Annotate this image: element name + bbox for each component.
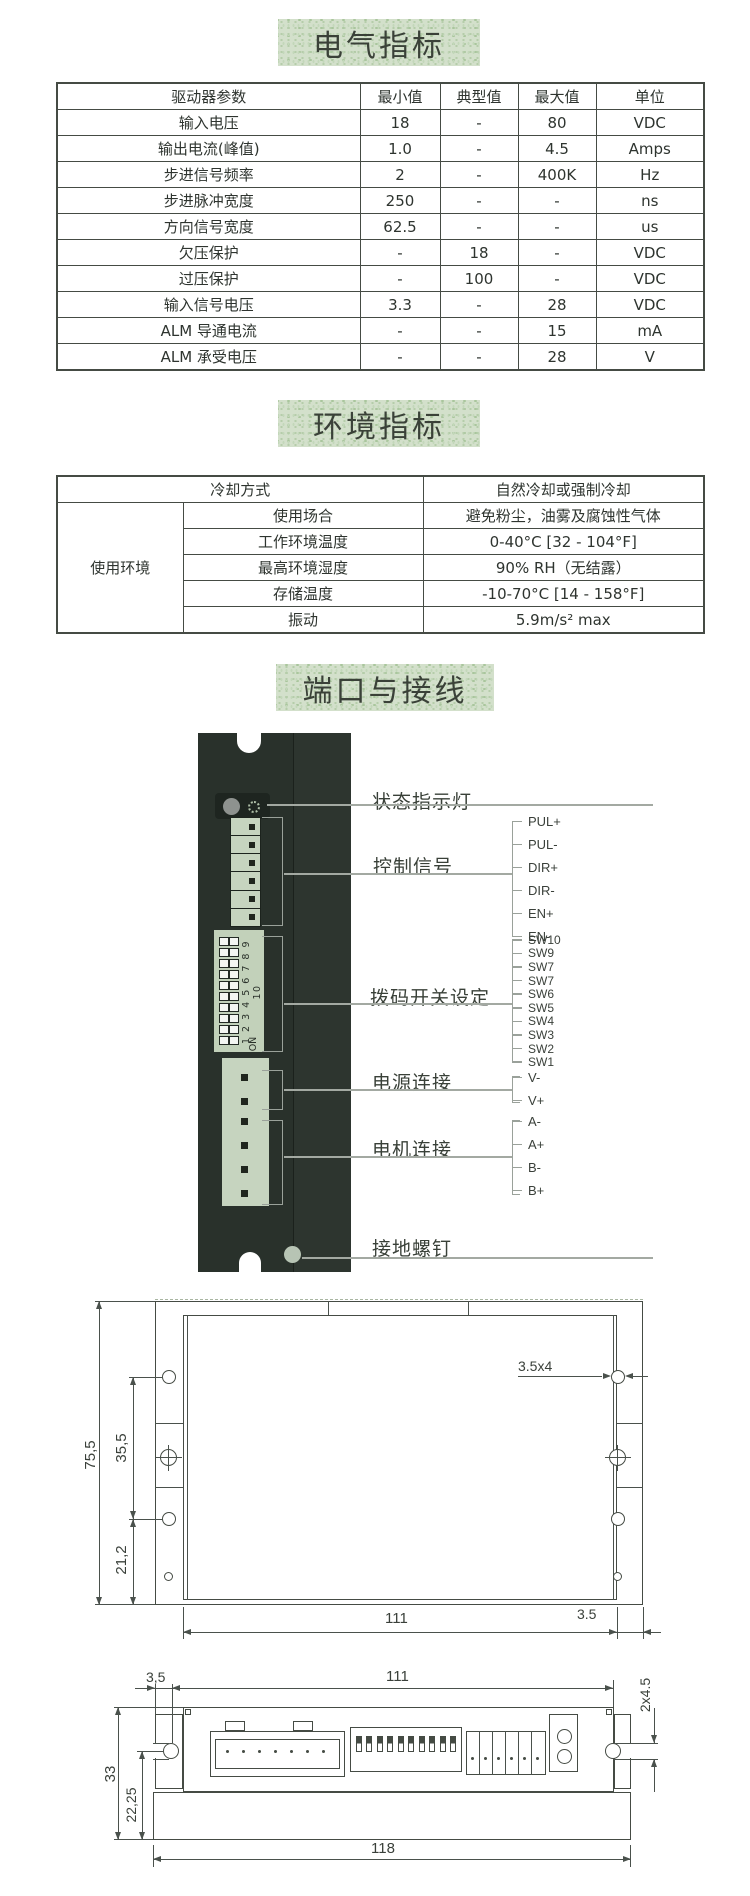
slot-line	[613, 1743, 658, 1744]
pin-label: SW5	[513, 1001, 561, 1015]
dip-switch-side	[419, 1736, 425, 1752]
pin-dot	[306, 1750, 309, 1753]
pin-label: EN+	[513, 902, 561, 925]
led-sparkle-icon	[248, 801, 260, 813]
pin-label: SW4	[513, 1015, 561, 1029]
dim-height-slot: 22,25	[123, 1779, 139, 1831]
dim-hole-span: 35,5	[113, 1428, 129, 1468]
terminal-pin	[241, 1190, 248, 1197]
leader-line	[284, 873, 512, 875]
ext-line	[172, 1684, 173, 1743]
top-tab-line	[328, 1301, 329, 1315]
table-cell: 步进信号频率	[57, 162, 360, 188]
table-row: 冷却方式 自然冷却或强制冷却	[57, 476, 704, 503]
table-cell: 62.5	[360, 214, 440, 240]
ext-line	[95, 1301, 155, 1302]
dim-line	[133, 1377, 134, 1519]
environment-title-text: 环境指标	[313, 402, 445, 446]
mounting-notch-bottom	[239, 1252, 261, 1272]
col-header-unit: 单位	[596, 83, 704, 110]
leader-line	[633, 1376, 648, 1377]
pin-dot	[226, 1750, 229, 1753]
table-cell: -	[440, 136, 518, 162]
ext-line	[613, 1680, 614, 1707]
dip-switch-side	[408, 1736, 414, 1752]
table-cell: Hz	[596, 162, 704, 188]
arrowhead	[651, 1735, 657, 1743]
table-cell: 28	[518, 292, 596, 318]
dip-switch[interactable]	[219, 981, 239, 990]
table-row: 过压保护-100-VDC	[57, 266, 704, 292]
terminal-cell	[231, 836, 260, 853]
table-row: 方向信号宽度62.5--us	[57, 214, 704, 240]
cooling-method-label: 冷却方式	[57, 476, 423, 503]
small-hole	[164, 1572, 173, 1581]
pin-dot	[510, 1757, 513, 1760]
power-pin-list: V-V+	[513, 1066, 544, 1112]
dim-offset-left: 3,5	[146, 1669, 165, 1685]
table-cell: ALM 承受电压	[57, 344, 360, 371]
arrowhead	[139, 1832, 145, 1840]
screw-cross	[617, 1445, 618, 1471]
table-cell: 过压保护	[57, 266, 360, 292]
cooling-method-value: 自然冷却或强制冷却	[423, 476, 704, 503]
table-cell: 400K	[518, 162, 596, 188]
pin-label: PUL+	[513, 810, 561, 833]
table-cell: -10-70°C [14 - 158°F]	[423, 581, 704, 607]
dip-switch[interactable]	[219, 1014, 239, 1023]
table-row: ALM 承受电压--28V	[57, 344, 704, 371]
col-header-min: 最小值	[360, 83, 440, 110]
arrowhead	[153, 1856, 161, 1862]
pin-label: SW3	[513, 1028, 561, 1042]
dip-switch[interactable]	[219, 948, 239, 957]
dip-switch[interactable]	[219, 1036, 239, 1045]
dim-hole-size: 3.5x4	[518, 1358, 552, 1374]
pin-label: SW9	[513, 947, 561, 961]
table-cell: -	[518, 188, 596, 214]
dim-height-overall: 75,5	[82, 1435, 98, 1475]
table-cell: 100	[440, 266, 518, 292]
arrowhead	[625, 1373, 633, 1379]
sw-pin-list: SW10SW9SW7SW7SW6SW5SW4SW3SW2SW1	[513, 933, 561, 1069]
dim-line	[153, 1859, 631, 1860]
pin-dot	[497, 1757, 500, 1760]
col-header-max: 最大值	[518, 83, 596, 110]
terminal-pin	[241, 1074, 248, 1081]
pin-label: V-	[513, 1066, 544, 1089]
dip-switch-side	[429, 1736, 435, 1752]
ext-line	[137, 1751, 163, 1752]
centerline	[155, 1299, 643, 1300]
dim-width-body: 111	[385, 1610, 408, 1627]
pin-label: B-	[513, 1156, 544, 1179]
table-cell: 0-40°C [32 - 104°F]	[423, 529, 704, 555]
dim-line	[183, 1632, 661, 1633]
table-cell: 28	[518, 344, 596, 371]
dip-switch[interactable]	[219, 1025, 239, 1034]
screw-cross	[605, 1457, 631, 1458]
leader-line	[284, 1089, 512, 1091]
table-cell: 18	[360, 110, 440, 136]
connector-tab	[225, 1721, 245, 1731]
table-cell: -	[440, 318, 518, 344]
terminal-cell	[231, 872, 260, 889]
pin-dot	[290, 1750, 293, 1753]
connector-inner	[215, 1739, 340, 1769]
ext-line	[155, 1684, 156, 1714]
dip-switch-side	[377, 1736, 383, 1752]
col-header-typical: 典型值	[440, 83, 518, 110]
dim-line	[135, 1688, 613, 1689]
corner-mark	[185, 1709, 191, 1715]
mounting-hole	[162, 1370, 176, 1384]
arrowhead	[115, 1707, 121, 1715]
arrowhead	[139, 1751, 145, 1759]
table-cell: -	[360, 318, 440, 344]
dip-switch-side	[366, 1736, 372, 1752]
pin-label: SW10	[513, 933, 561, 947]
dim-slot-size: 2x4.5	[637, 1669, 653, 1721]
table-cell: -	[360, 344, 440, 371]
table-cell: 2	[360, 162, 440, 188]
slot-end	[163, 1743, 179, 1759]
table-cell: 90% RH（无结露）	[423, 555, 704, 581]
cell-divider	[492, 1731, 493, 1775]
pin-label: PUL-	[513, 833, 561, 856]
arrowhead	[130, 1519, 136, 1527]
environment-table: 冷却方式 自然冷却或强制冷却 使用环境 使用场合 避免粉尘，油雾及腐蚀性气体 工…	[56, 475, 705, 634]
pin-label: SW2	[513, 1042, 561, 1056]
table-cell: 4.5	[518, 136, 596, 162]
screw-cross	[156, 1457, 182, 1458]
table-cell: 15	[518, 318, 596, 344]
arrowhead	[172, 1685, 180, 1691]
arrowhead	[147, 1685, 155, 1691]
bracket-power	[262, 1070, 283, 1110]
usage-env-group-label: 使用环境	[57, 503, 183, 634]
screw-cross	[168, 1445, 169, 1471]
corner-mark	[606, 1709, 612, 1715]
mounting-hole	[611, 1512, 625, 1526]
screw-hole	[557, 1729, 572, 1744]
control-pin-list: PUL+PUL-DIR+DIR-EN+EN-	[513, 810, 561, 948]
arrowhead	[651, 1759, 657, 1767]
dim-line	[99, 1301, 100, 1605]
terminal-cell	[231, 909, 260, 926]
table-cell: -	[440, 110, 518, 136]
terminal-pin	[241, 1166, 248, 1173]
table-row: 输入信号电压3.3-28VDC	[57, 292, 704, 318]
table-row: ALM 导通电流--15mA	[57, 318, 704, 344]
ports-title-text: 端口与接线	[303, 666, 468, 710]
leader-line	[284, 1003, 512, 1005]
table-cell: 避免粉尘，油雾及腐蚀性气体	[423, 503, 704, 529]
leader-line	[267, 804, 653, 806]
table-row: 步进信号频率2-400KHz	[57, 162, 704, 188]
ports-section-title: 端口与接线	[276, 664, 494, 711]
ext-line	[95, 1604, 155, 1605]
dip-switch-side	[387, 1736, 393, 1752]
pin-label: SW7	[513, 974, 561, 988]
environment-section-title: 环境指标	[278, 400, 480, 447]
table-cell: Amps	[596, 136, 704, 162]
control-signal-connector	[230, 817, 261, 927]
driver-datasheet-page: 电气指标 驱动器参数 最小值 典型值 最大值 单位 输入电压18-80VDC输出…	[0, 0, 750, 1896]
arrowhead	[623, 1856, 631, 1862]
pin-label: DIR-	[513, 879, 561, 902]
flange-line	[155, 1487, 183, 1488]
table-cell: -	[440, 214, 518, 240]
table-cell: 80	[518, 110, 596, 136]
leader-line	[302, 1257, 653, 1259]
base-outline	[153, 1792, 631, 1840]
table-cell: 输入电压	[57, 110, 360, 136]
pin-dot	[471, 1757, 474, 1760]
arrowhead	[605, 1685, 613, 1691]
arrowhead	[609, 1629, 617, 1635]
pin-label: DIR+	[513, 856, 561, 879]
table-cell: us	[596, 214, 704, 240]
flange-line	[617, 1423, 643, 1424]
pin-dot	[322, 1750, 325, 1753]
small-hole	[613, 1572, 622, 1581]
mounting-hole	[162, 1512, 176, 1526]
terminal-pin	[241, 1142, 248, 1149]
table-cell: -	[518, 240, 596, 266]
mounting-hole	[611, 1370, 625, 1384]
power-connector-side	[466, 1731, 546, 1775]
dip-switch[interactable]	[219, 992, 239, 1001]
connector-tab	[293, 1721, 313, 1731]
slot-end	[605, 1743, 621, 1759]
pin-dot	[274, 1750, 277, 1753]
table-cell: 1.0	[360, 136, 440, 162]
table-cell: -	[360, 266, 440, 292]
table-cell: 步进脉冲宽度	[57, 188, 360, 214]
dim-line	[142, 1751, 143, 1840]
status-led-label: 状态指示灯	[372, 787, 472, 814]
terminal-pin	[241, 1118, 248, 1125]
screw-hole	[557, 1749, 572, 1764]
dip-on-label: ON	[247, 1031, 259, 1057]
cell-divider	[505, 1731, 506, 1775]
table-cell: -	[440, 344, 518, 371]
table-cell: 输出电流(峰值)	[57, 136, 360, 162]
table-cell: 使用场合	[183, 503, 423, 529]
motor-pin-list: A-A+B-B+	[513, 1110, 544, 1202]
table-cell: 存储温度	[183, 581, 423, 607]
dip-switch-label: 拨码开关设定	[370, 983, 490, 1010]
pin-label: B+	[513, 1179, 544, 1202]
dip-switch-side	[398, 1736, 404, 1752]
dim-flange-offset: 3.5	[577, 1606, 596, 1622]
bracket-dip	[262, 936, 283, 1052]
leader-line	[284, 1156, 512, 1158]
table-row: 欠压保护-18-VDC	[57, 240, 704, 266]
table-row: 步进脉冲宽度250--ns	[57, 188, 704, 214]
table-cell: 输入信号电压	[57, 292, 360, 318]
pin-label: A+	[513, 1133, 544, 1156]
cell-divider	[518, 1731, 519, 1775]
pin-dot	[523, 1757, 526, 1760]
pin-label: SW6	[513, 987, 561, 1001]
table-cell: -	[518, 266, 596, 292]
top-tab-line	[468, 1301, 469, 1315]
pin-label: V+	[513, 1089, 544, 1112]
table-cell: -	[440, 292, 518, 318]
table-cell: -	[440, 188, 518, 214]
arrowhead	[183, 1629, 191, 1635]
dim-height-overall: 33	[102, 1759, 118, 1789]
ext-line	[617, 1607, 618, 1639]
terminal-cell	[231, 891, 260, 908]
ground-screw	[284, 1246, 301, 1263]
flange-line	[617, 1487, 643, 1488]
table-cell: VDC	[596, 292, 704, 318]
pin-dot	[242, 1750, 245, 1753]
flange-line	[155, 1423, 183, 1424]
ext-line	[114, 1707, 183, 1708]
table-cell: VDC	[596, 110, 704, 136]
dim-hole-bottom: 21,2	[113, 1540, 129, 1580]
leader-line	[518, 1376, 602, 1377]
terminal-pin	[241, 1098, 248, 1105]
table-cell: 最高环境湿度	[183, 555, 423, 581]
electrical-title-text: 电气指标	[313, 21, 445, 65]
arrowhead	[643, 1629, 651, 1635]
electrical-section-title: 电气指标	[278, 19, 480, 66]
terminal-cell	[231, 854, 260, 871]
dip-switch[interactable]	[219, 937, 239, 946]
slot-line	[153, 1743, 169, 1744]
pin-label: A-	[513, 1110, 544, 1133]
electrical-header-row: 驱动器参数 最小值 典型值 最大值 单位	[57, 83, 704, 110]
table-cell: -	[518, 214, 596, 240]
table-cell: 欠压保护	[57, 240, 360, 266]
dim-width-overall: 118	[371, 1840, 395, 1857]
table-cell: -	[440, 162, 518, 188]
arrowhead	[130, 1511, 136, 1519]
table-cell: 18	[440, 240, 518, 266]
status-led	[223, 798, 240, 815]
table-row: 输出电流(峰值)1.0-4.5Amps	[57, 136, 704, 162]
arrowhead	[130, 1377, 136, 1385]
slot-line	[153, 1759, 169, 1760]
cell-divider	[479, 1731, 480, 1775]
table-cell: 工作环境温度	[183, 529, 423, 555]
pin-dot	[258, 1750, 261, 1753]
table-row: 使用环境 使用场合 避免粉尘，油雾及腐蚀性气体	[57, 503, 704, 529]
dip-switch-side	[450, 1736, 456, 1752]
arrowhead	[96, 1301, 102, 1309]
table-cell: VDC	[596, 240, 704, 266]
table-row: 输入电压18-80VDC	[57, 110, 704, 136]
table-cell: 5.9m/s² max	[423, 607, 704, 634]
bracket-control	[262, 817, 283, 926]
dip-switch[interactable]	[219, 959, 239, 968]
dip-switch[interactable]	[219, 1003, 239, 1012]
table-cell: VDC	[596, 266, 704, 292]
ext-line	[129, 1377, 162, 1378]
arrowhead	[603, 1373, 611, 1379]
bracket-motor	[262, 1120, 283, 1205]
table-cell: -	[360, 240, 440, 266]
dim-width-body: 111	[386, 1668, 409, 1685]
pin-dot	[536, 1757, 539, 1760]
dip-switch[interactable]	[219, 970, 239, 979]
dip-switch-side	[440, 1736, 446, 1752]
dip-switch-side	[356, 1736, 362, 1752]
arrowhead	[130, 1597, 136, 1605]
terminal-cell	[231, 818, 260, 835]
table-cell: ALM 导通电流	[57, 318, 360, 344]
table-cell: 3.3	[360, 292, 440, 318]
table-cell: ns	[596, 188, 704, 214]
slot-opening	[620, 1744, 632, 1758]
dim-line	[133, 1519, 134, 1605]
table-cell: mA	[596, 318, 704, 344]
table-cell: 方向信号宽度	[57, 214, 360, 240]
table-cell: 250	[360, 188, 440, 214]
pin-label: SW7	[513, 960, 561, 974]
ext-line	[114, 1839, 153, 1840]
pin-dot	[484, 1757, 487, 1760]
electrical-table: 驱动器参数 最小值 典型值 最大值 单位 输入电压18-80VDC输出电流(峰值…	[56, 82, 705, 371]
table-cell: V	[596, 344, 704, 371]
wall-line	[187, 1315, 188, 1600]
cell-divider	[531, 1731, 532, 1775]
col-header-parameter: 驱动器参数	[57, 83, 360, 110]
table-cell: 振动	[183, 607, 423, 634]
